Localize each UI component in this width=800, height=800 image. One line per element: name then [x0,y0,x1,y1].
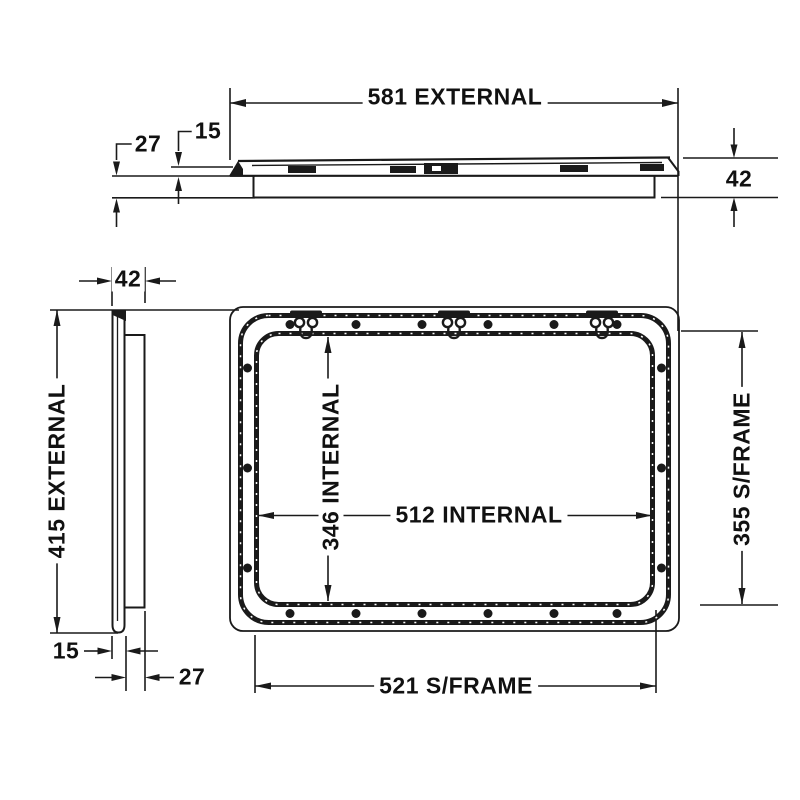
top-profile-view [229,158,679,198]
screw-holes [243,320,666,618]
flange-profile [254,176,655,198]
frame-inner-edge [257,334,653,605]
latch-block [288,166,316,173]
dim-flange-depth-top-label: 27 [132,132,165,157]
latch-block [560,165,588,172]
dim-external-height-label: 415 EXTERNAL [45,379,70,564]
side-profile-view [112,310,145,633]
latch-block [640,164,664,171]
dim-lid-thickness-side-label: 15 [50,639,83,664]
technical-drawing-page: 581 EXTERNAL 15 27 42 42 415 EXTERNAL 34… [0,0,800,800]
dim-profile-width-side-label: 42 [112,267,145,292]
dim-internal-height-label: 346 INTERNAL [319,378,344,555]
dim-subframe-height-label: 355 S/FRAME [730,387,755,551]
frame-front-view [230,307,679,631]
frame-outer-edge [230,307,679,631]
dim-profile-height-right-label: 42 [723,167,756,192]
dim-flange-depth-side-label: 27 [176,665,209,690]
dim-internal-width-label: 512 INTERNAL [390,503,567,528]
dim-external-width-label: 581 EXTERNAL [363,85,548,110]
flange-profile-side [125,335,145,608]
dim-subframe-width-label: 521 S/FRAME [374,674,538,699]
lid-left-tip [229,161,243,176]
frame-subframe-edge [241,316,669,623]
latch-block [390,166,416,173]
dim-lid-thickness-top-label: 15 [192,119,225,144]
